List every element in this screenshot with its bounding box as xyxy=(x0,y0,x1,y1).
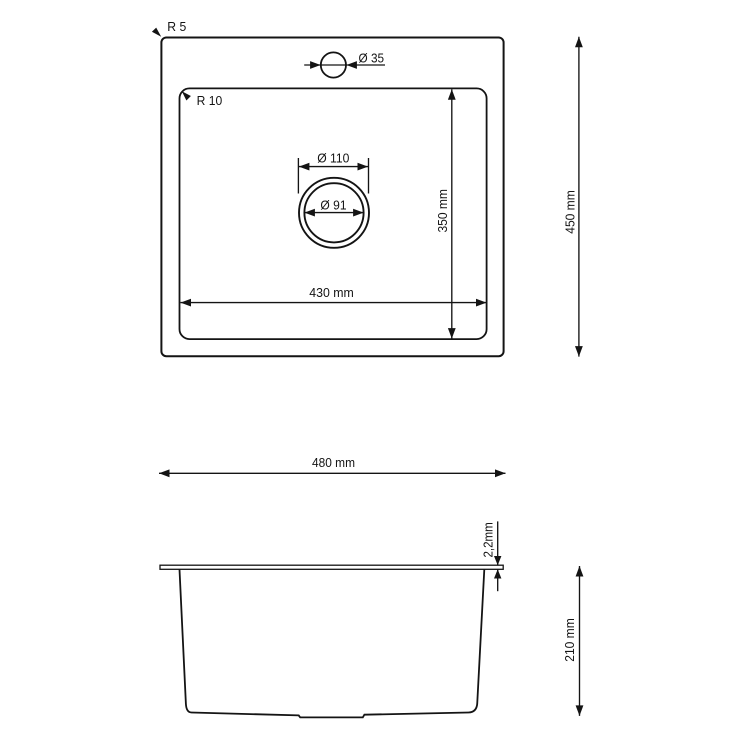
svg-text:R 5: R 5 xyxy=(167,19,186,34)
svg-text:430 mm: 430 mm xyxy=(309,285,354,300)
svg-text:2,2mm: 2,2mm xyxy=(481,522,496,557)
svg-text:350 mm: 350 mm xyxy=(435,189,450,233)
svg-text:Ø 110: Ø 110 xyxy=(317,150,349,165)
svg-text:Ø 35: Ø 35 xyxy=(359,51,385,66)
svg-text:Ø 91: Ø 91 xyxy=(320,198,346,213)
svg-text:480 mm: 480 mm xyxy=(312,455,355,470)
svg-text:450 mm: 450 mm xyxy=(562,190,577,234)
svg-text:210 mm: 210 mm xyxy=(562,618,577,662)
svg-text:R 10: R 10 xyxy=(197,93,223,108)
